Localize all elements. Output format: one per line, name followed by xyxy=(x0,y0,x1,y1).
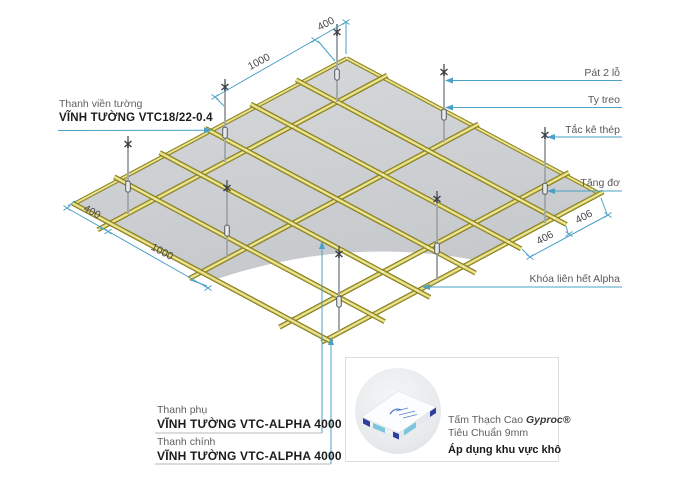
board-brand: Gyproc® xyxy=(526,414,571,426)
hanger-rod xyxy=(336,246,343,332)
cross-tee-product: VĨNH TƯỜNG VTC-ALPHA 4000 xyxy=(157,417,342,432)
gypsum-board-card: Tấm Thạch Cao Gyproc® Tiêu Chuẩn 9mm Áp … xyxy=(345,357,559,462)
wall-angle-label: Thanh viền tường VĨNH TƯỜNG VTC18/22-0.4 xyxy=(59,98,213,126)
main-runner-label: Thanh chính VĨNH TƯỜNG VTC-ALPHA 4000 xyxy=(157,436,342,464)
wall-angle-product: VĨNH TƯỜNG VTC18/22-0.4 xyxy=(59,111,213,126)
hanger-rod-label: Ty treo xyxy=(430,94,620,106)
gypsum-board-image xyxy=(352,365,444,457)
alpha-lock-label: Khóa liên hết Alpha xyxy=(430,273,620,285)
board-spec: Tiêu Chuẩn 9mm xyxy=(448,427,571,440)
cross-tee-label: Thanh phụ VĨNH TƯỜNG VTC-ALPHA 4000 xyxy=(157,404,342,432)
ceiling-system-diagram: Thanh viền tường VĨNH TƯỜNG VTC18/22-0.4… xyxy=(0,0,679,480)
bracket-label: Pát 2 lỗ xyxy=(430,67,620,79)
board-material: Tấm Thạch Cao Gyproc® xyxy=(448,414,571,427)
main-runner-type: Thanh chính xyxy=(157,436,342,449)
main-runner-product: VĨNH TƯỜNG VTC-ALPHA 4000 xyxy=(157,449,342,464)
turnbuckle-label: Tăng đơ xyxy=(430,177,620,189)
cross-tee-type: Thanh phụ xyxy=(157,404,342,417)
board-note: Tấm Thạch Cao Gyproc® Tiêu Chuẩn 9mm Áp … xyxy=(448,414,571,457)
steel-anchor-label: Tắc kê thép xyxy=(430,124,620,136)
board-usage: Áp dụng khu vực khô xyxy=(448,443,571,457)
wall-angle-type: Thanh viền tường xyxy=(59,98,213,111)
